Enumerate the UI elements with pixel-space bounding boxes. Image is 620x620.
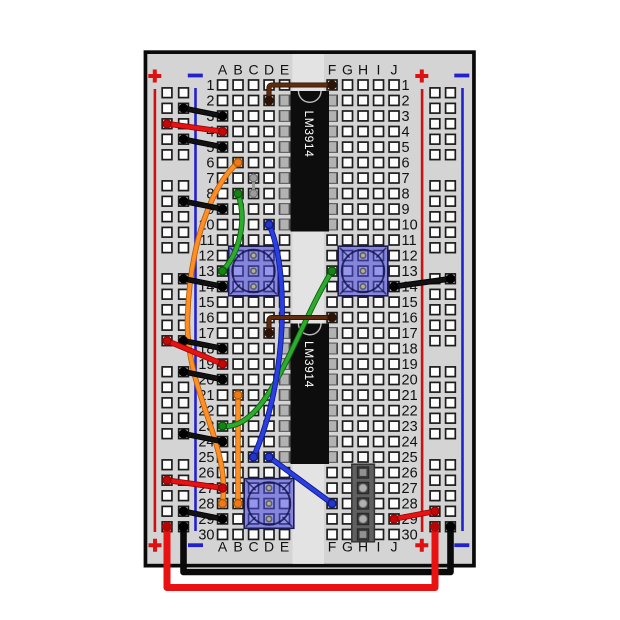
svg-text:6: 6: [402, 156, 410, 172]
svg-text:B: B: [233, 539, 242, 555]
svg-text:I: I: [377, 539, 381, 555]
svg-text:5: 5: [402, 140, 410, 156]
svg-text:J: J: [391, 62, 398, 78]
svg-text:2: 2: [402, 94, 410, 110]
svg-text:25: 25: [198, 450, 214, 466]
svg-text:4: 4: [402, 125, 410, 141]
svg-text:B: B: [233, 62, 242, 78]
svg-text:16: 16: [198, 311, 214, 327]
svg-text:25: 25: [402, 450, 418, 466]
svg-text:13: 13: [402, 264, 418, 280]
svg-text:28: 28: [402, 497, 418, 513]
svg-text:20: 20: [402, 373, 418, 389]
svg-text:7: 7: [402, 171, 410, 187]
svg-text:17: 17: [198, 326, 214, 342]
svg-text:1: 1: [206, 78, 214, 94]
svg-text:I: I: [377, 62, 381, 78]
svg-text:30: 30: [198, 528, 214, 544]
svg-text:19: 19: [402, 357, 418, 373]
svg-text:LM3914: LM3914: [302, 111, 316, 158]
svg-text:26: 26: [198, 466, 214, 482]
svg-text:F: F: [328, 539, 337, 555]
svg-text:28: 28: [198, 497, 214, 513]
svg-text:21: 21: [402, 388, 418, 404]
svg-text:3: 3: [402, 109, 410, 125]
svg-text:D: D: [264, 539, 274, 555]
svg-text:C: C: [248, 62, 258, 78]
svg-text:26: 26: [402, 466, 418, 482]
svg-text:LM3914: LM3914: [302, 341, 316, 388]
svg-text:E: E: [280, 62, 289, 78]
svg-text:8: 8: [402, 187, 410, 203]
svg-text:17: 17: [402, 326, 418, 342]
svg-text:30: 30: [402, 528, 418, 544]
svg-text:16: 16: [402, 311, 418, 327]
svg-text:12: 12: [198, 249, 214, 265]
svg-text:13: 13: [198, 264, 214, 280]
svg-text:22: 22: [402, 404, 418, 420]
svg-text:27: 27: [402, 481, 418, 497]
svg-text:24: 24: [402, 435, 418, 451]
svg-text:12: 12: [402, 249, 418, 265]
svg-text:A: A: [218, 539, 228, 555]
svg-text:23: 23: [402, 419, 418, 435]
svg-text:15: 15: [198, 295, 214, 311]
svg-text:2: 2: [206, 94, 214, 110]
svg-text:D: D: [264, 62, 274, 78]
svg-text:A: A: [218, 62, 228, 78]
svg-text:1: 1: [402, 78, 410, 94]
svg-text:15: 15: [402, 295, 418, 311]
svg-text:10: 10: [402, 218, 418, 234]
svg-text:J: J: [391, 539, 398, 555]
svg-text:18: 18: [402, 342, 418, 358]
svg-text:E: E: [280, 539, 289, 555]
svg-text:G: G: [342, 62, 353, 78]
svg-text:11: 11: [402, 233, 417, 249]
svg-text:9: 9: [402, 202, 410, 218]
svg-text:H: H: [358, 62, 368, 78]
svg-text:7: 7: [206, 171, 214, 187]
svg-text:C: C: [248, 539, 258, 555]
svg-text:F: F: [328, 62, 337, 78]
svg-text:6: 6: [206, 156, 214, 172]
